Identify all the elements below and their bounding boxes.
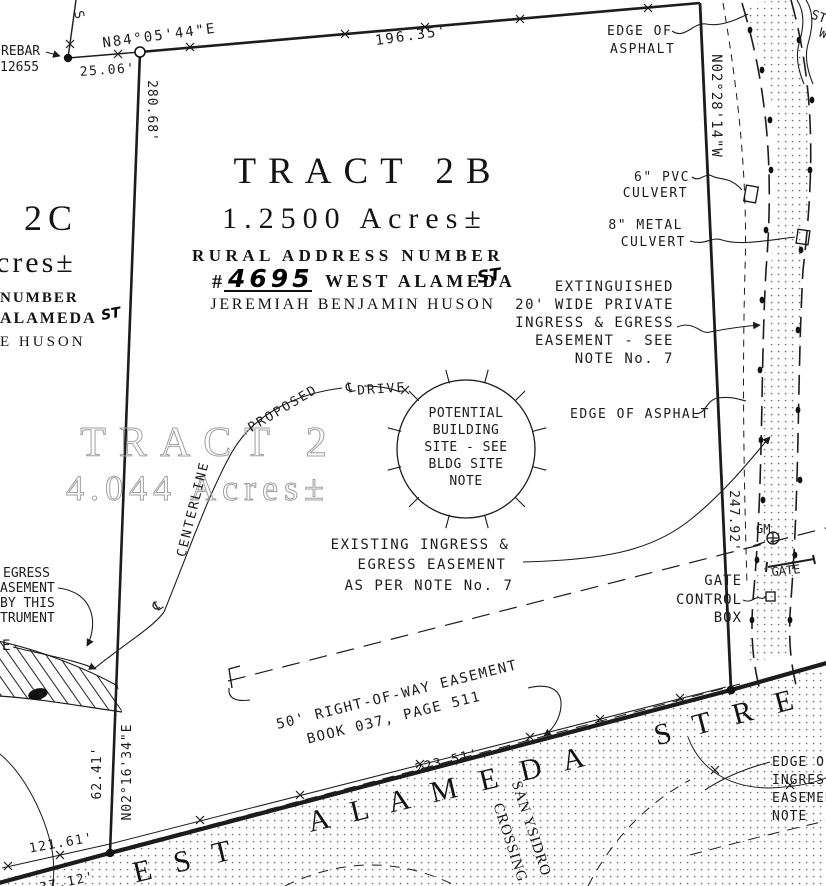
tract2b-hash: # [212, 271, 222, 293]
gate-control-2: CONTROL [676, 592, 742, 608]
extinguished-4: EASEMENT - SEE [535, 333, 674, 349]
gm-label: GM [756, 522, 770, 536]
metal-culvert-2: CULVERT [621, 235, 686, 250]
plat-page: REBAR 12655 S N84°05'44"E 25.06' 196.35'… [0, 0, 826, 886]
metal-culvert-1: 8" METAL [608, 218, 683, 233]
edge-ingress-4: NOTE [772, 809, 807, 824]
distance-2506: 25.06' [79, 61, 136, 80]
edge-of-asphalt-mid: EDGE OF ASPHALT [570, 407, 710, 422]
egress-frag-4: TRUMENT [0, 611, 55, 626]
tract2b-name: TRACT 2B [233, 151, 502, 192]
tract2c-st: ST [100, 305, 124, 324]
tract2-name-ghost: TRACT 2 [80, 420, 339, 466]
distance-6241: 62.41' [90, 747, 105, 800]
tract2b-owner: JEREMIAH BENJAMIN HUSON [210, 296, 495, 313]
plat-drawing: REBAR 12655 S N84°05'44"E 25.06' 196.35'… [0, 0, 826, 886]
tract2c-name: 2C [24, 198, 78, 238]
existing-easement-1: EXISTING INGRESS & [331, 537, 510, 553]
existing-easement-3: AS PER NOTE No. 7 [345, 578, 514, 594]
site-note-2: BUILDING [433, 423, 500, 438]
tract2c-owner: E HUSON [0, 334, 86, 350]
tract2c-street: ALAMEDA [0, 310, 97, 327]
culvert-symbol [744, 185, 759, 203]
bearing-bottom-left: N02°16'34"E [120, 723, 135, 820]
pvc-culvert-2: CULVERT [623, 186, 688, 201]
distance-19635: 196.35' [374, 23, 449, 49]
gate-control-1: GATE [704, 573, 742, 589]
site-note-1: POTENTIAL [429, 406, 504, 421]
edge-ingress-2: INGRESS [772, 773, 826, 788]
extinguished-5: NOTE No. 7 [575, 351, 674, 367]
edge-of-asphalt-top-2: ASPHALT [610, 42, 675, 57]
edge-of-asphalt-top-1: EDGE OF [607, 24, 672, 39]
tract2c-rural: NUMBER [0, 290, 79, 306]
site-note-5: NOTE [449, 474, 482, 489]
egress-frag-5: E [2, 638, 10, 654]
bearing-right: N02°28'14"W [708, 54, 724, 158]
extinguished-3: INGRESS & EGRESS [515, 315, 674, 331]
pvc-culvert-1: 6" PVC [634, 170, 690, 185]
leader-lines [13, 14, 795, 790]
edge-ingress-3: EASEMENT [772, 791, 826, 806]
tract2b-area: 1.2500 Acres± [222, 202, 488, 235]
existing-easement-2: EGRESS EASEMENT [358, 557, 507, 573]
tract2c-area: cres± [0, 246, 76, 279]
fragment-w: W [817, 26, 826, 43]
rebar-label: REBAR [1, 44, 40, 59]
site-note-3: SITE - SEE [424, 440, 507, 455]
egress-frag-2: ASEMENT [0, 581, 55, 596]
distance-24792: 247.92' [726, 490, 741, 552]
egress-frag-3: BY THIS [0, 596, 55, 611]
tract2b-st: ST [476, 265, 504, 288]
gate-control-3: BOX [714, 610, 742, 626]
corner-open-circle [135, 47, 145, 57]
rebar-point [64, 54, 72, 62]
edge-ingress-1: EDGE OF [772, 755, 826, 770]
tract2b-address-number: 4695 [227, 264, 314, 293]
san-ysidro-asphalt [742, 0, 812, 662]
extinguished-2: 20' WIDE PRIVATE [515, 297, 674, 313]
tract2b-rural-line: RURAL ADDRESS NUMBER [192, 246, 504, 265]
egress-frag-1: EGRESS [3, 566, 50, 581]
distance-12161: 121.61' [28, 830, 95, 856]
rebar-number: 12655 [0, 60, 39, 75]
drive-label: DRIVE [357, 380, 407, 398]
corner-sw [106, 849, 114, 857]
distance-28068: 280.68' [144, 80, 159, 142]
site-note-4: BLDG SITE [429, 457, 504, 472]
fragment-s: S [70, 9, 87, 20]
extinguished-1: EXTINGUISHED [555, 279, 674, 295]
centerline-symbol: ℄ [344, 379, 357, 397]
gate-label: GATE [771, 562, 801, 579]
